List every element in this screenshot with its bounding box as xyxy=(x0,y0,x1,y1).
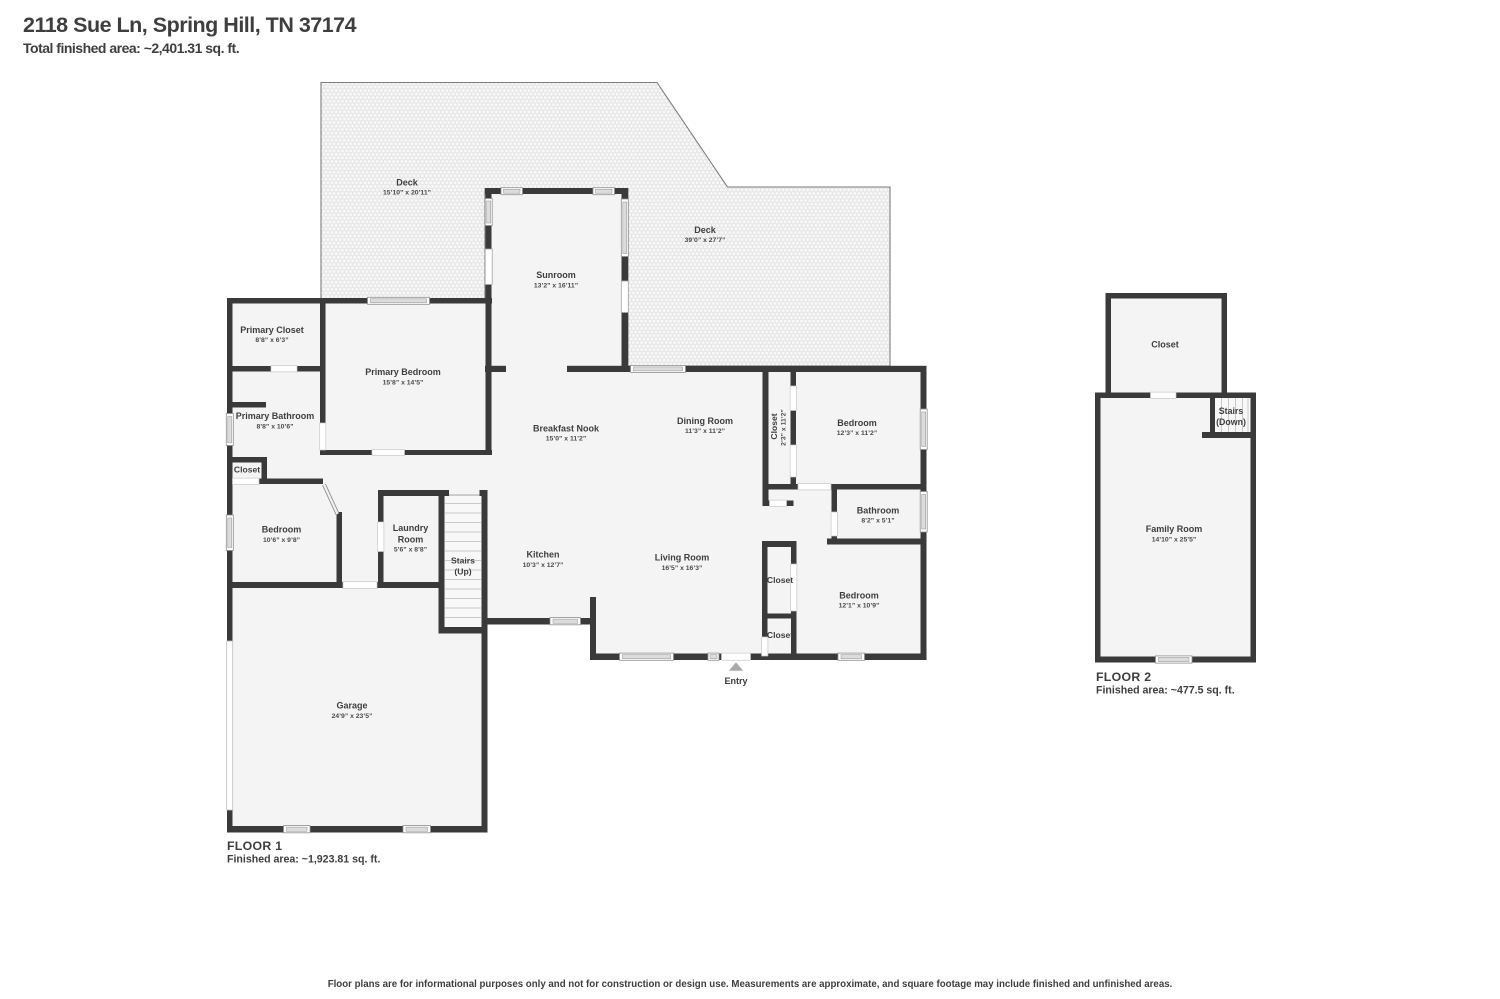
svg-text:2’3” x 11’2”: 2’3” x 11’2” xyxy=(781,409,788,446)
svg-text:Primary Bathroom: Primary Bathroom xyxy=(236,411,315,421)
svg-text:Dining Room: Dining Room xyxy=(677,416,733,426)
svg-text:Deck: Deck xyxy=(396,178,419,188)
svg-text:Deck: Deck xyxy=(694,225,717,235)
svg-text:Closet: Closet xyxy=(1151,340,1179,350)
svg-text:Breakfast Nook: Breakfast Nook xyxy=(533,424,600,434)
svg-text:Primary Closet: Primary Closet xyxy=(240,325,304,335)
svg-text:15’10” x 20’11”: 15’10” x 20’11” xyxy=(383,190,431,197)
svg-text:Primary Bedroom: Primary Bedroom xyxy=(365,367,441,377)
svg-text:8’8” x 6’3”: 8’8” x 6’3” xyxy=(255,337,288,344)
svg-text:Living Room: Living Room xyxy=(655,553,710,563)
svg-text:Bedroom: Bedroom xyxy=(837,418,877,428)
svg-text:FLOOR 2: FLOOR 2 xyxy=(1096,670,1151,684)
svg-text:2118 Sue Ln, Spring Hill, TN 3: 2118 Sue Ln, Spring Hill, TN 37174 xyxy=(23,13,357,37)
svg-text:Closet: Closet xyxy=(769,413,779,439)
svg-text:FLOOR 1: FLOOR 1 xyxy=(227,839,282,853)
svg-text:Family Room: Family Room xyxy=(1146,524,1203,534)
svg-text:Finished area: ~1,923.81 sq. f: Finished area: ~1,923.81 sq. ft. xyxy=(227,854,380,866)
svg-text:Stairs: Stairs xyxy=(451,556,475,566)
svg-text:Closet: Closet xyxy=(767,630,793,640)
svg-text:13’2” x 16’11”: 13’2” x 16’11” xyxy=(534,283,578,290)
svg-text:10’6” x 9’8”: 10’6” x 9’8” xyxy=(263,537,300,544)
svg-text:Bathroom: Bathroom xyxy=(857,506,900,516)
svg-text:Closet: Closet xyxy=(767,575,793,585)
svg-text:Total finished area: ~2,401.31: Total finished area: ~2,401.31 sq. ft. xyxy=(23,40,239,56)
svg-text:Stairs: Stairs xyxy=(1219,406,1244,416)
svg-text:Sunroom: Sunroom xyxy=(536,270,576,280)
svg-text:12’3” x 11’2”: 12’3” x 11’2” xyxy=(837,430,877,437)
svg-text:16’5” x 16’3”: 16’5” x 16’3” xyxy=(662,565,703,572)
svg-text:Entry: Entry xyxy=(724,676,747,686)
svg-text:Finished area: ~477.5 sq. ft.: Finished area: ~477.5 sq. ft. xyxy=(1096,685,1235,697)
svg-text:15’8” x 14’5”: 15’8” x 14’5” xyxy=(383,380,424,387)
svg-text:14’10” x 25’5”: 14’10” x 25’5” xyxy=(1152,537,1197,544)
svg-text:12’1” x 10’9”: 12’1” x 10’9” xyxy=(839,603,880,610)
svg-text:Bedroom: Bedroom xyxy=(839,591,879,601)
svg-text:(Up): (Up) xyxy=(454,567,471,577)
svg-text:15’0” x 11’2”: 15’0” x 11’2” xyxy=(546,436,586,443)
svg-text:11’3” x 11’2”: 11’3” x 11’2” xyxy=(685,428,725,435)
svg-text:Laundry: Laundry xyxy=(393,523,429,533)
svg-text:Kitchen: Kitchen xyxy=(526,550,559,560)
svg-text:8’2” x 5’1”: 8’2” x 5’1” xyxy=(861,518,894,525)
svg-text:Bedroom: Bedroom xyxy=(262,525,302,535)
svg-text:10’3” x 12’7”: 10’3” x 12’7” xyxy=(523,562,564,569)
svg-text:Closet: Closet xyxy=(234,465,260,475)
svg-text:Garage: Garage xyxy=(336,701,367,711)
svg-text:(Down): (Down) xyxy=(1216,417,1246,427)
svg-text:24’9” x 23’5”: 24’9” x 23’5” xyxy=(332,713,373,720)
svg-text:5’6” x 8’8”: 5’6” x 8’8” xyxy=(394,547,427,554)
svg-text:Floor plans are for informatio: Floor plans are for informational purpos… xyxy=(328,979,1173,990)
svg-text:Room: Room xyxy=(398,535,424,545)
svg-text:8’8” x 10’6”: 8’8” x 10’6” xyxy=(256,424,293,431)
svg-text:39’0” x 27’7”: 39’0” x 27’7” xyxy=(685,237,726,244)
